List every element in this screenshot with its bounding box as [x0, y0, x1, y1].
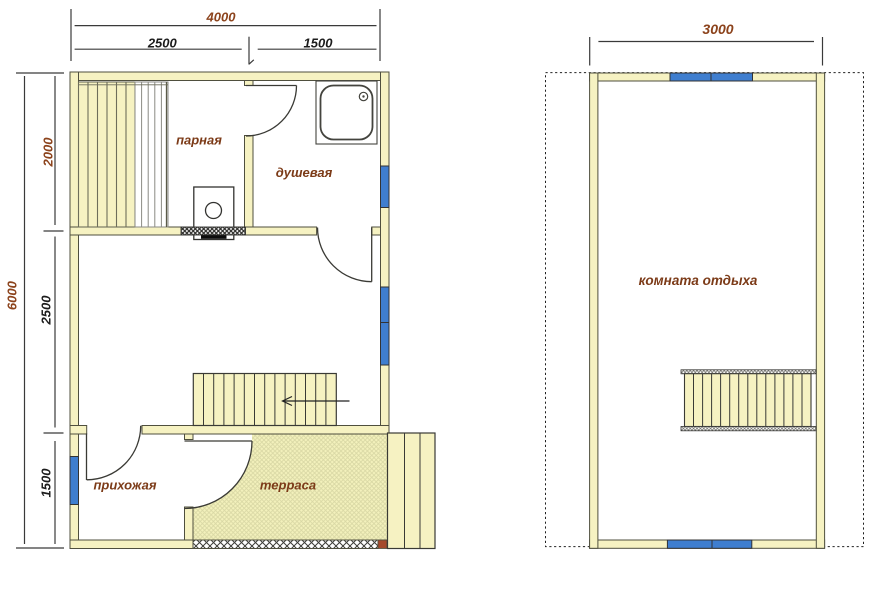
svg-text:1500: 1500	[39, 468, 54, 498]
svg-text:прихожая: прихожая	[93, 478, 156, 493]
svg-text:2500: 2500	[39, 295, 54, 326]
svg-text:2500: 2500	[147, 36, 178, 51]
svg-text:комната отдыха: комната отдыха	[639, 273, 758, 288]
svg-text:6000: 6000	[5, 280, 20, 310]
svg-text:4000: 4000	[206, 10, 237, 25]
svg-text:парная: парная	[176, 133, 222, 148]
svg-text:2000: 2000	[41, 137, 56, 168]
svg-text:душевая: душевая	[276, 165, 333, 180]
svg-text:1500: 1500	[304, 36, 334, 51]
svg-text:3000: 3000	[702, 21, 733, 37]
svg-text:терраса: терраса	[260, 478, 316, 493]
